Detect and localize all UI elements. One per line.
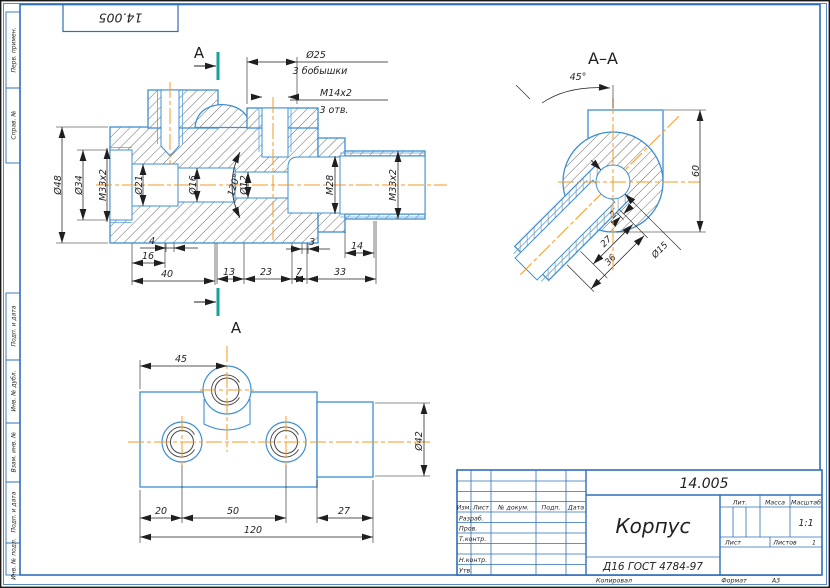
dim-60: 60 (691, 165, 702, 177)
margin-label: Подп. и дата (11, 305, 18, 346)
dim-dia21: Ø21 (134, 175, 145, 196)
tb-doc-number: 14.005 (680, 476, 729, 492)
tb-col-data: Дата (567, 505, 584, 512)
dim-13: 13 (223, 267, 235, 278)
dim-45: 45 (175, 354, 187, 365)
margin-label: Перв. примен. (11, 27, 18, 72)
dim-16: 16 (142, 251, 154, 262)
tb-kopiroval: Копировал (596, 578, 632, 585)
callout-m14: M14x2 (320, 88, 352, 99)
callout-holes: 3 отв. (319, 105, 348, 116)
drawing-sheet: 14.005 Перв. примен. Справ. № Подп. и да… (0, 0, 830, 588)
dim-33: 33 (334, 267, 346, 278)
tb-massa: Масса (765, 500, 785, 507)
margin-label: Инв. № дубл. (11, 370, 18, 411)
dim-dia16: Ø16 (188, 175, 199, 196)
tb-format-value: А3 (771, 578, 780, 585)
tb-row-utv: Утв. (459, 568, 472, 575)
callout-bosses: 3 бобышки (293, 66, 348, 77)
tb-list-label: Лист (724, 540, 741, 547)
tb-row-razrab: Разраб. (459, 515, 484, 523)
tb-masshtab: Масштаб (791, 499, 821, 507)
dim-m28: M28 (325, 175, 336, 195)
dim-angle45: 45° (570, 72, 587, 83)
tb-lit: Лит. (732, 500, 748, 507)
tb-listov-value: 1 (812, 540, 816, 547)
section-letter-top: А (194, 44, 205, 62)
tb-scale-value: 1:1 (798, 518, 813, 529)
tb-format-label: Формат (721, 578, 747, 585)
dim-dia48: Ø48 (53, 175, 64, 196)
section-title: А–А (588, 49, 618, 68)
drawing-canvas: 14.005 Перв. примен. Справ. № Подп. и да… (0, 0, 830, 588)
tb-col-list: Лист (472, 505, 489, 512)
title-block: Изм. Лист № докум. Подп. Дата Разраб. Пр… (457, 470, 822, 585)
dim-50: 50 (227, 506, 239, 517)
dim-3: 3 (309, 237, 315, 248)
dim-23: 23 (260, 267, 272, 278)
dim-120: 120 (244, 525, 262, 536)
tb-row-tkontr: Т.контр. (459, 536, 486, 543)
dim-7: 7 (296, 267, 302, 278)
corner-code: 14.005 (99, 11, 143, 26)
margin-label: Подп. и дата (11, 491, 18, 532)
dim-27b: 27 (338, 506, 350, 517)
margin-label: Взам. инв. № (11, 432, 18, 473)
callout-dia25: Ø25 (305, 50, 326, 61)
dim-20: 20 (155, 506, 167, 517)
dim-dia42: Ø42 (414, 431, 425, 452)
tb-col-ndoc: № докум. (497, 505, 529, 512)
margin-label: Инв. № подл. (11, 538, 18, 579)
tb-row-prov: Пров. (459, 526, 477, 533)
dim-m33-right: M33x2 (388, 169, 399, 201)
dim-4: 4 (149, 236, 155, 247)
tb-listov-label: Листов (772, 540, 797, 547)
tb-part-name: Корпус (615, 514, 690, 538)
dim-m33-left: M33x2 (98, 169, 109, 201)
dim-dia34: Ø34 (74, 175, 85, 196)
margin-label: Справ. № (11, 110, 18, 139)
section-letter-bottom: А (231, 319, 242, 337)
tb-col-izm: Изм. (457, 505, 472, 512)
tb-material: Д16 ГОСТ 4784-97 (602, 561, 703, 573)
dim-14: 14 (351, 241, 363, 252)
dim-40: 40 (161, 269, 173, 280)
tb-row-nkontr: Н.контр. (459, 557, 487, 564)
tb-col-podp: Подп. (541, 505, 560, 512)
